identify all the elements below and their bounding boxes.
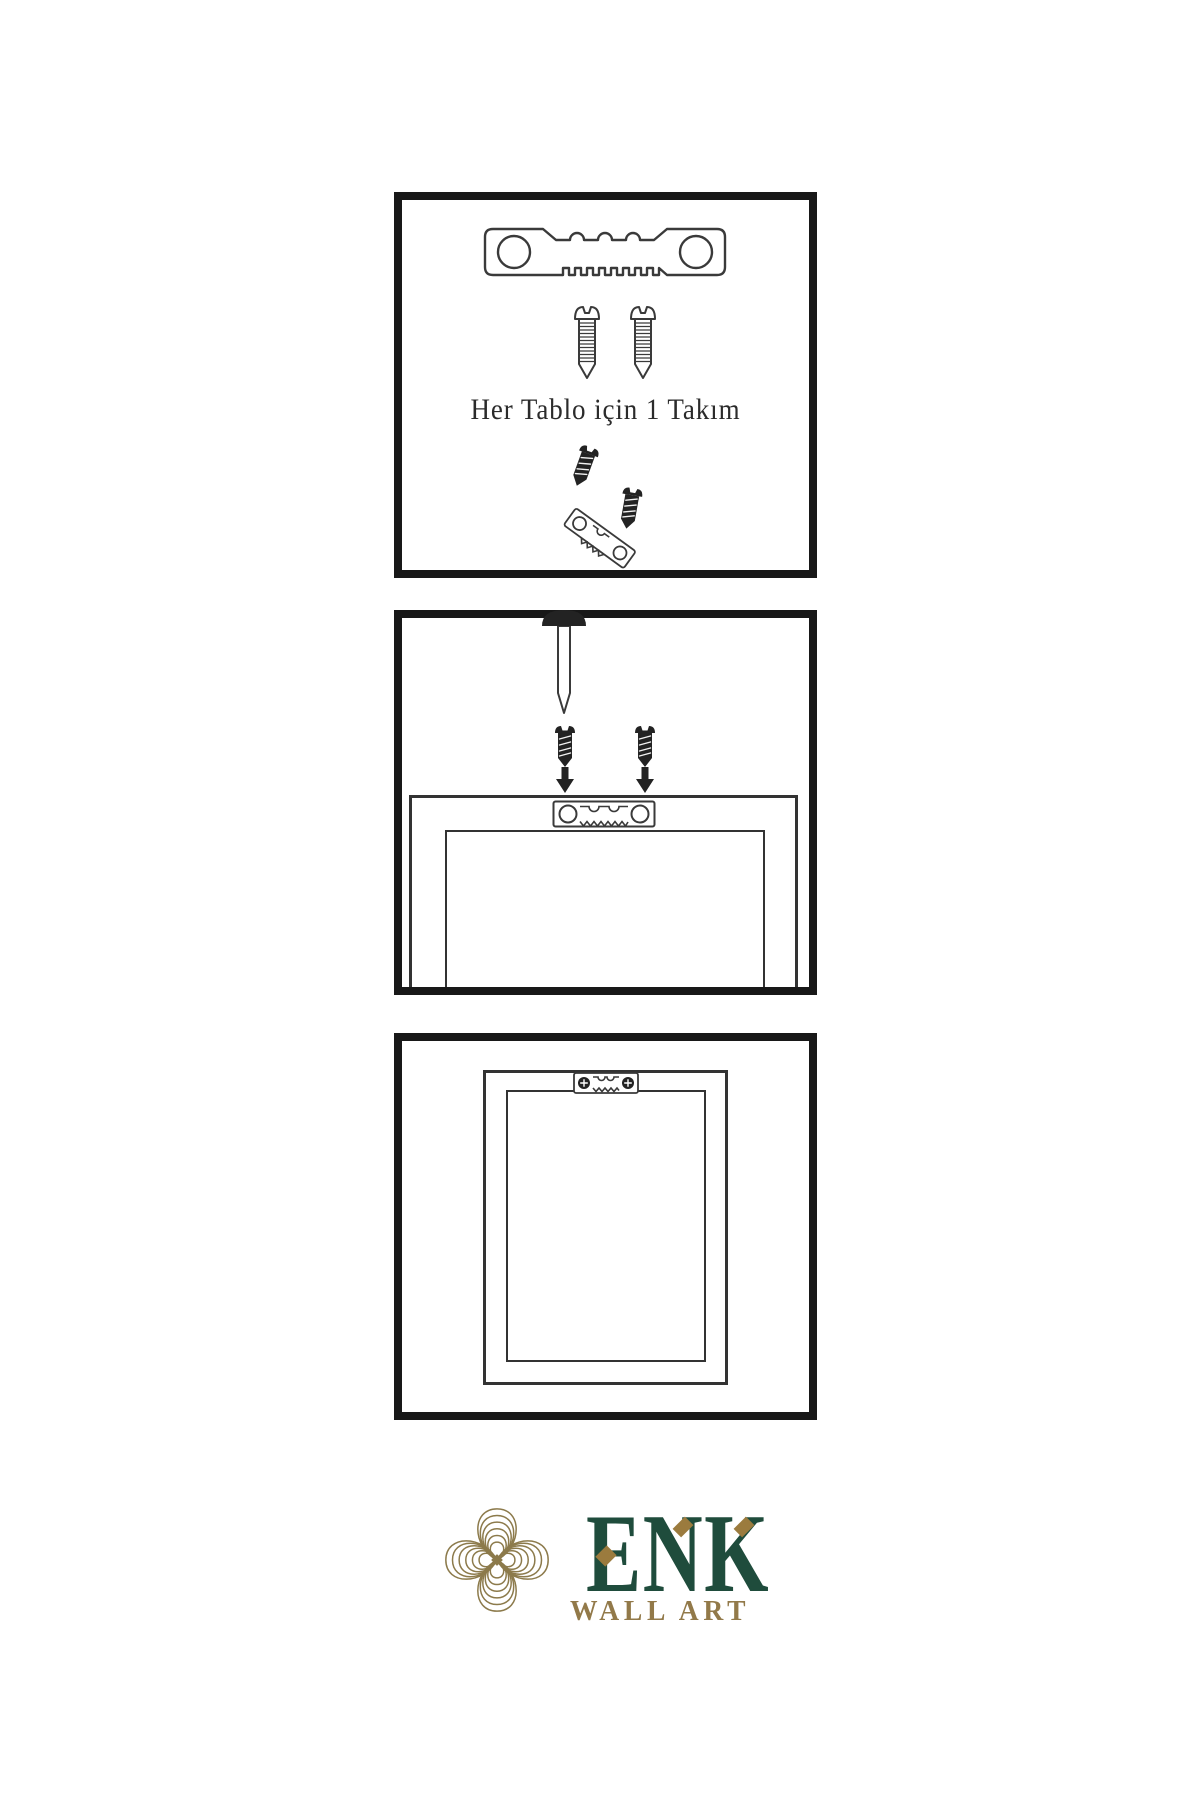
frame-back-inner <box>506 1090 706 1362</box>
step1-panel: Her Tablo için 1 Takım <box>394 192 817 578</box>
arrow-down-icon <box>635 767 655 794</box>
sawtooth-hanger-icon <box>483 224 727 280</box>
sawtooth-hanger-on-frame-icon <box>552 800 656 828</box>
screw-icon <box>628 303 658 381</box>
nail-icon <box>541 609 587 717</box>
knot-logo-icon <box>436 1498 558 1622</box>
hanger-assembly-icon <box>560 444 676 576</box>
dark-screw-icon <box>567 444 600 489</box>
sawtooth-hanger-installed-icon <box>573 1072 639 1094</box>
brand-tagline: WALL ART <box>570 1597 750 1626</box>
step3-panel <box>394 1033 817 1420</box>
screw-icon <box>572 303 602 381</box>
step2-panel <box>394 610 817 995</box>
frame-back-inner <box>445 830 765 987</box>
dark-screw-icon <box>617 487 644 531</box>
dark-screw-icon <box>553 724 577 768</box>
instruction-sheet: Her Tablo için 1 Takım <box>0 0 1200 1800</box>
dark-screw-icon <box>633 724 657 768</box>
arrow-down-icon <box>555 767 575 794</box>
kit-caption: Her Tablo için 1 Takım <box>422 393 788 427</box>
